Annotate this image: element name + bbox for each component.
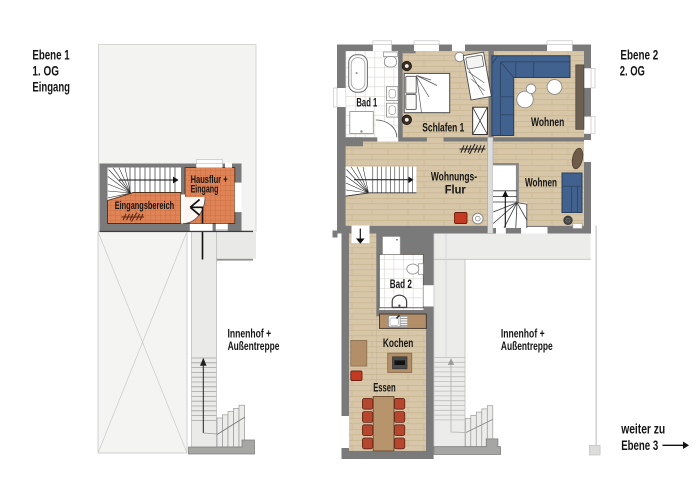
svg-text:Wohnen: Wohnen: [525, 178, 557, 190]
svg-text:Flur: Flur: [445, 182, 466, 196]
svg-text:Eingang: Eingang: [32, 79, 70, 95]
svg-text:Bad 1: Bad 1: [356, 98, 377, 110]
svg-text:Innenhof +: Innenhof +: [501, 329, 545, 341]
svg-text:Schlafen 1: Schlafen 1: [422, 122, 464, 134]
svg-text:Ebene 2: Ebene 2: [620, 46, 658, 62]
svg-text:Ebene 3: Ebene 3: [621, 438, 658, 453]
svg-text:1. OG: 1. OG: [32, 63, 59, 79]
svg-text:Kochen: Kochen: [383, 338, 413, 350]
svg-text:Bad 2: Bad 2: [390, 279, 412, 291]
svg-text:Außentreppe: Außentreppe: [501, 341, 553, 353]
svg-text:Ebene 1: Ebene 1: [32, 46, 69, 62]
svg-text:Eingang: Eingang: [191, 184, 219, 196]
svg-text:Essen: Essen: [373, 383, 396, 395]
svg-text:Eingangsbereich: Eingangsbereich: [115, 200, 175, 212]
svg-text:Innenhof +: Innenhof +: [228, 329, 272, 341]
svg-text:Außentreppe: Außentreppe: [228, 341, 280, 353]
svg-text:Wohnungs-: Wohnungs-: [431, 169, 477, 183]
svg-text:Wohnen: Wohnen: [531, 117, 564, 129]
svg-text:2. OG: 2. OG: [620, 63, 645, 79]
svg-text:weiter zu: weiter zu: [620, 422, 665, 437]
